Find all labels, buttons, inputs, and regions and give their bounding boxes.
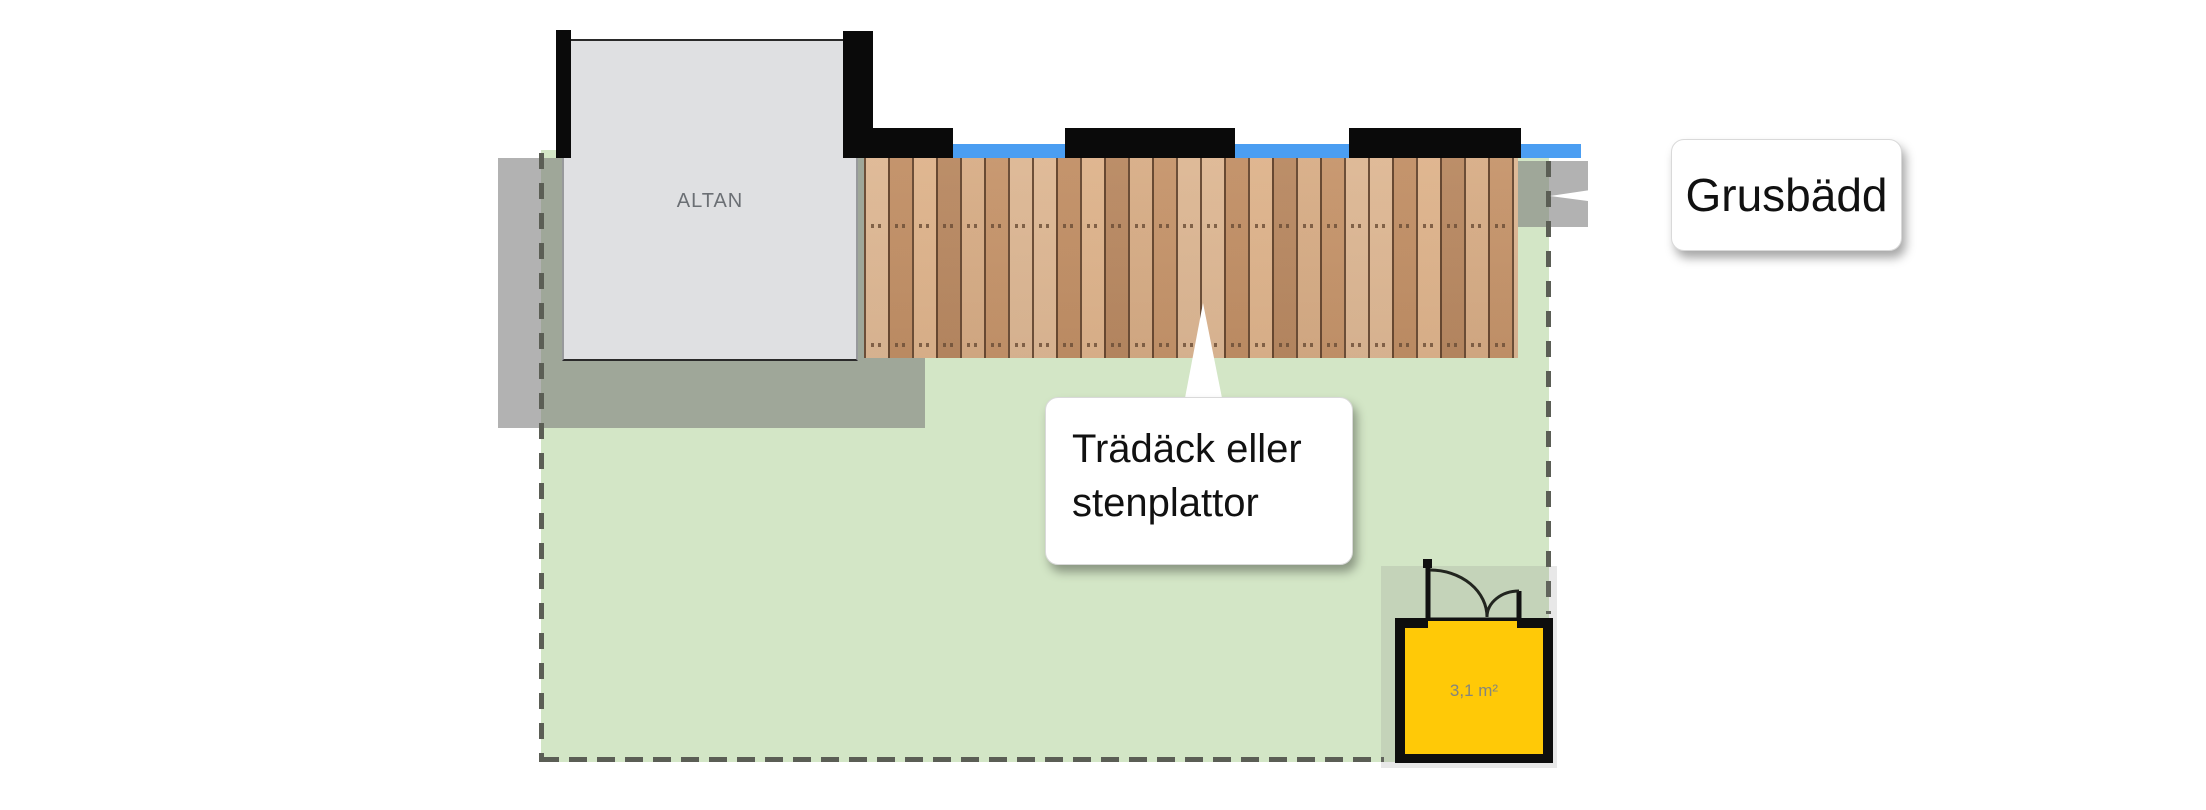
deck-screw-row-top: [864, 224, 1518, 228]
window-strip-2: [1235, 144, 1349, 158]
boundary-dashed-right: [1546, 161, 1551, 614]
shed[interactable]: 3,1 m²: [1395, 618, 1553, 763]
house-wall-left: [556, 30, 571, 158]
boundary-dashed-bottom: [541, 757, 1384, 762]
gravel-bed-right[interactable]: [1518, 161, 1588, 227]
deck-screw-row-bottom: [864, 343, 1518, 347]
tradack-callout-line1: Trädäck eller: [1072, 422, 1352, 476]
grusbadd-callout-text: Grusbädd: [1685, 168, 1887, 222]
facade-wall-segment-3: [1349, 128, 1521, 158]
boundary-dashed-left: [539, 153, 544, 762]
window-strip-1: [953, 144, 1065, 158]
tradack-callout[interactable]: Trädäck eller stenplattor: [1045, 397, 1353, 565]
grusbadd-callout[interactable]: Grusbädd: [1671, 139, 1902, 251]
site-plan-canvas: 3,1 m² ALTAN Grusbädd Trädäck eller sten…: [0, 0, 2206, 810]
facade-wall-segment-1: [843, 128, 953, 158]
shed-door-swing-icon: [1385, 550, 1560, 635]
facade-wall-segment-2: [1065, 128, 1235, 158]
wood-deck[interactable]: [864, 158, 1518, 358]
shed-area-label: 3,1 m²: [1405, 628, 1543, 754]
window-strip-3: [1521, 144, 1581, 158]
altan-label: ALTAN: [562, 190, 858, 213]
shed-floor: 3,1 m²: [1405, 628, 1543, 754]
tradack-callout-line2: stenplattor: [1072, 476, 1352, 530]
